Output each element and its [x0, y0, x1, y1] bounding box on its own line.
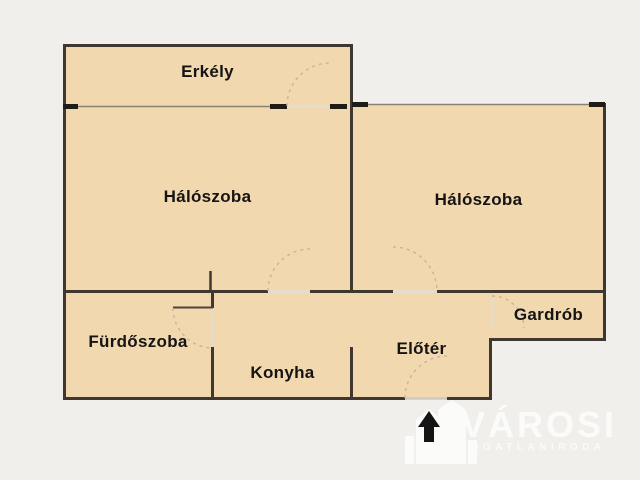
watermark-subtitle: INGATLANIRODA — [464, 442, 606, 453]
watermark-brand: VÁROSI — [461, 404, 617, 446]
room-area-eloter — [352, 291, 491, 399]
room-fills — [63, 45, 605, 399]
room-area-gardrob — [491, 291, 605, 339]
logo-block-left — [405, 436, 414, 464]
room-area-haloszoba-2 — [352, 104, 605, 292]
room-area-haloszoba-1 — [63, 106, 352, 292]
room-area-konyha — [213, 291, 352, 399]
room-area-erkely — [63, 45, 352, 106]
logo-arrow-stem-icon — [424, 427, 434, 442]
floorplan-canvas: Erkély Hálószoba Hálószoba Fürdőszoba Ko… — [0, 0, 640, 480]
